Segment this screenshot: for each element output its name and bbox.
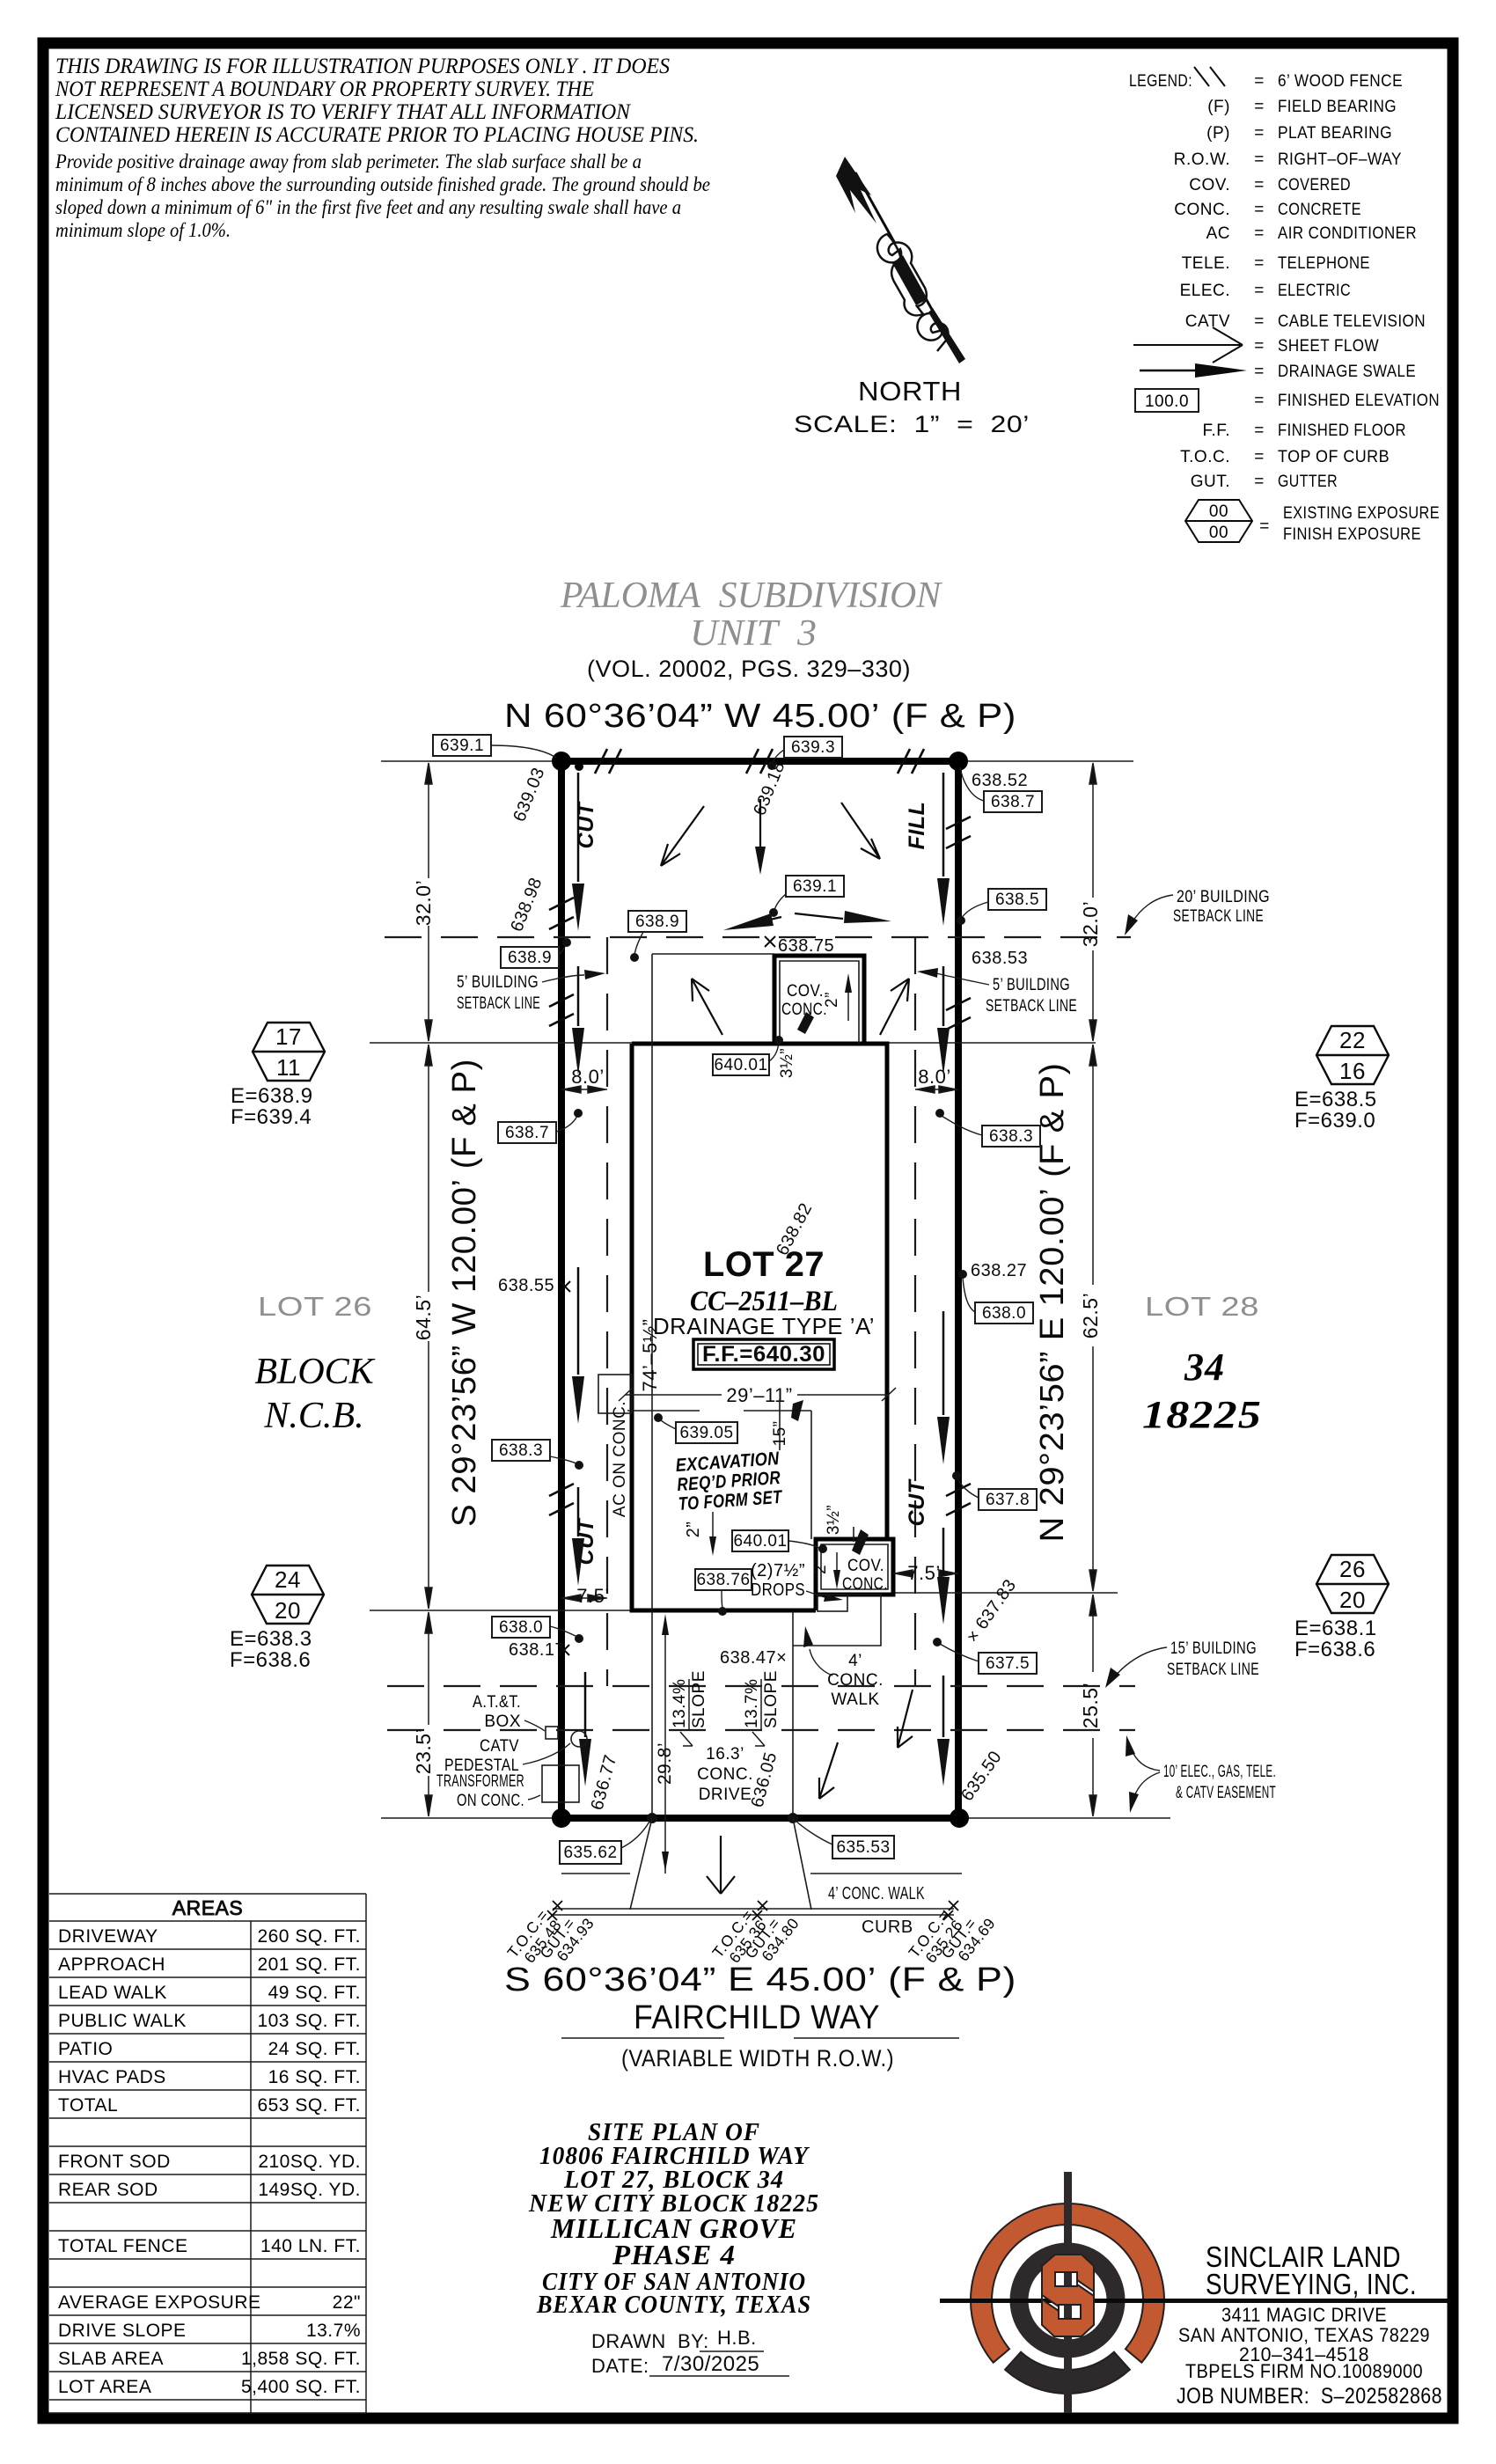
svg-text:640.01: 640.01: [714, 1056, 767, 1074]
svg-text:637.8: 637.8: [986, 1491, 1030, 1509]
svg-text:F.F.: F.F.: [1202, 422, 1230, 440]
svg-text:639.3: 639.3: [791, 738, 835, 757]
svg-text:COV.: COV.: [847, 1557, 884, 1575]
svg-text:REAR SOD: REAR SOD: [58, 2180, 158, 2200]
svg-text:638.7: 638.7: [991, 793, 1035, 811]
svg-text:DRAINAGE SWALE: DRAINAGE SWALE: [1278, 363, 1416, 381]
svg-text:NORTH: NORTH: [858, 376, 962, 407]
svg-text:AC ON CONC.: AC ON CONC.: [611, 1401, 629, 1517]
svg-text:=: =: [1254, 448, 1265, 466]
svg-text:DRIVE SLOPE: DRIVE SLOPE: [58, 2321, 187, 2341]
svg-text:DRIVEWAY: DRIVEWAY: [58, 1926, 158, 1947]
svg-text:3½”: 3½”: [825, 1505, 843, 1535]
svg-text:TRANSFORMER: TRANSFORMER: [436, 1772, 524, 1791]
svg-text:5,400 SQ. FT.: 5,400 SQ. FT.: [241, 2377, 361, 2397]
svg-text:24: 24: [275, 1566, 301, 1593]
svg-text:(2)7½”: (2)7½”: [751, 1561, 805, 1580]
svg-text:15”: 15”: [771, 1421, 789, 1447]
svg-text:THIS DRAWING IS FOR ILLUSTRATI: THIS DRAWING IS FOR ILLUSTRATION PURPOSE…: [55, 55, 670, 78]
svg-text:LEAD WALK: LEAD WALK: [58, 1983, 167, 2003]
svg-text:DATE:: DATE:: [591, 2355, 649, 2377]
svg-text:20: 20: [275, 1597, 301, 1624]
svg-text:CATV: CATV: [480, 1737, 519, 1756]
svg-text:SHEET FLOW: SHEET FLOW: [1278, 337, 1379, 356]
svg-text:F=638.6: F=638.6: [1294, 1638, 1375, 1661]
svg-text:13.7%: 13.7%: [306, 2321, 361, 2341]
svg-text:62.5’: 62.5’: [1079, 1293, 1102, 1338]
svg-text:638.76: 638.76: [696, 1571, 750, 1589]
svg-text:HVAC PADS: HVAC PADS: [58, 2067, 166, 2087]
svg-text:638.9: 638.9: [508, 949, 552, 967]
svg-text:32.0’: 32.0’: [1079, 901, 1102, 947]
svg-text:F=639.0: F=639.0: [1294, 1109, 1375, 1133]
svg-text:RIGHT–OF–WAY: RIGHT–OF–WAY: [1278, 150, 1402, 169]
svg-text:SLOPE: SLOPE: [762, 1670, 781, 1728]
svg-text:100.0: 100.0: [1145, 392, 1189, 411]
svg-text:CONTAINED HEREIN IS ACCURATE P: CONTAINED HEREIN IS ACCURATE PRIOR TO PL…: [55, 123, 699, 147]
svg-text:DRAWN BY:: DRAWN BY:: [591, 2330, 709, 2352]
svg-text:LOT 27: LOT 27: [703, 1245, 825, 1284]
svg-text:=: =: [1254, 124, 1265, 143]
svg-text:=: =: [1259, 517, 1270, 536]
svg-text:49 SQ. FT.: 49 SQ. FT.: [268, 1983, 361, 2003]
svg-text:638.5: 638.5: [995, 891, 1039, 909]
svg-text:5’ BUILDING: 5’ BUILDING: [993, 976, 1070, 994]
svg-text:638.27: 638.27: [971, 1261, 1027, 1280]
svg-text:minimum slope of 1.0%.: minimum slope of 1.0%.: [55, 219, 231, 241]
svg-text:CUT: CUT: [905, 1478, 929, 1526]
svg-text:22: 22: [1339, 1027, 1366, 1053]
svg-text:=: =: [1254, 98, 1265, 116]
svg-text:CABLE TELEVISION: CABLE TELEVISION: [1278, 312, 1426, 331]
svg-text:SETBACK LINE: SETBACK LINE: [1173, 907, 1264, 926]
svg-text:PATIO: PATIO: [58, 2039, 113, 2059]
svg-text:UNIT 3: UNIT 3: [690, 613, 817, 654]
svg-text:1,858 SQ. FT.: 1,858 SQ. FT.: [241, 2349, 361, 2369]
svg-text:NOT REPRESENT A BOUNDARY OR PR: NOT REPRESENT A BOUNDARY OR PROPERTY SUR…: [55, 77, 594, 101]
svg-text:639.1: 639.1: [793, 877, 837, 896]
svg-text:SETBACK LINE: SETBACK LINE: [457, 994, 540, 1013]
svg-text:2”: 2”: [811, 1558, 830, 1574]
svg-text:3411 MAGIC DRIVE: 3411 MAGIC DRIVE: [1221, 2304, 1387, 2326]
svg-text:653 SQ. FT.: 653 SQ. FT.: [257, 2095, 361, 2116]
svg-text:10’ ELEC., GAS, TELE.: 10’ ELEC., GAS, TELE.: [1163, 1763, 1276, 1781]
svg-text:=: =: [1254, 337, 1265, 356]
svg-text:F=639.4: F=639.4: [231, 1105, 312, 1129]
svg-text:5’ BUILDING: 5’ BUILDING: [457, 973, 539, 992]
svg-text:GUT.: GUT.: [1191, 473, 1230, 491]
svg-text:635.53: 635.53: [836, 1838, 890, 1857]
svg-text:PHASE 4: PHASE 4: [612, 2239, 736, 2270]
svg-text:E=638.5: E=638.5: [1294, 1088, 1377, 1111]
svg-text:N.C.B.: N.C.B.: [263, 1396, 363, 1436]
svg-text:29.8’: 29.8’: [655, 1742, 675, 1785]
svg-text:15’ BUILDING: 15’ BUILDING: [1170, 1639, 1257, 1658]
svg-text:WALK: WALK: [831, 1690, 879, 1709]
svg-text:TELEPHONE: TELEPHONE: [1278, 254, 1370, 273]
svg-text:638.0: 638.0: [499, 1618, 543, 1637]
svg-text:& CATV EASEMENT: & CATV EASEMENT: [1176, 1784, 1276, 1802]
svg-text:=: =: [1254, 363, 1265, 381]
svg-text:149SQ. YD.: 149SQ. YD.: [258, 2180, 361, 2200]
svg-text:201 SQ. FT.: 201 SQ. FT.: [257, 1954, 361, 1975]
svg-text:17: 17: [275, 1023, 302, 1050]
svg-text:16: 16: [1339, 1058, 1366, 1084]
svg-text:S 60°36’04” E 45.00’ (F & P): S 60°36’04” E 45.00’ (F & P): [504, 1962, 1016, 1998]
svg-text:COV.: COV.: [787, 982, 824, 1001]
svg-text:8.0’: 8.0’: [571, 1066, 604, 1088]
svg-text:FINISH EXPOSURE: FINISH EXPOSURE: [1283, 525, 1421, 544]
svg-text:LOT AREA: LOT AREA: [58, 2377, 151, 2397]
svg-text:TBPELS FIRM NO.10089000: TBPELS FIRM NO.10089000: [1185, 2360, 1423, 2382]
svg-text:SURVEYING, INC.: SURVEYING, INC.: [1206, 2268, 1417, 2300]
svg-text:LICENSED SURVEYOR IS TO VERIFY: LICENSED SURVEYOR IS TO VERIFY THAT ALL …: [55, 100, 631, 124]
svg-text:6’ WOOD FENCE: 6’ WOOD FENCE: [1278, 72, 1403, 91]
svg-text:638.17: 638.17: [509, 1640, 565, 1660]
svg-text:=: =: [1254, 224, 1265, 243]
svg-text:639.05: 639.05: [679, 1424, 733, 1442]
svg-text:638.3: 638.3: [989, 1127, 1033, 1146]
svg-text:639.1: 639.1: [440, 737, 484, 755]
svg-text:sloped down a minimum of 6" in: sloped down a minimum of 6" in the first…: [55, 196, 681, 218]
svg-text:TOTAL FENCE: TOTAL FENCE: [58, 2236, 187, 2256]
svg-text:FRONT SOD: FRONT SOD: [58, 2152, 171, 2172]
svg-text:140 LN. FT.: 140 LN. FT.: [260, 2236, 361, 2256]
svg-text:7.5’: 7.5’: [907, 1562, 940, 1584]
svg-text:=: =: [1254, 422, 1265, 440]
svg-text:CATV: CATV: [1185, 312, 1230, 331]
svg-text:CONC.: CONC.: [781, 1001, 827, 1019]
svg-text:AVERAGE EXPOSURE: AVERAGE EXPOSURE: [58, 2292, 261, 2313]
svg-text:26: 26: [1339, 1556, 1366, 1582]
svg-text:AC: AC: [1206, 224, 1230, 243]
svg-text:minimum of 8 inches above the: minimum of 8 inches above the surroundin…: [55, 173, 710, 195]
svg-text:R.O.W.: R.O.W.: [1174, 150, 1230, 169]
svg-text:(F): (F): [1207, 98, 1230, 116]
svg-text:COVERED: COVERED: [1278, 176, 1351, 194]
svg-text:CONCRETE: CONCRETE: [1278, 201, 1361, 219]
svg-text:CONC.: CONC.: [842, 1575, 888, 1594]
svg-text:00: 00: [1209, 524, 1228, 542]
svg-text:103 SQ. FT.: 103 SQ. FT.: [257, 2011, 361, 2031]
svg-text:SETBACK LINE: SETBACK LINE: [1167, 1661, 1259, 1679]
svg-text:635.62: 635.62: [563, 1844, 617, 1862]
svg-text:3½”: 3½”: [778, 1048, 796, 1078]
svg-text:FINISHED FLOOR: FINISHED FLOOR: [1278, 422, 1406, 440]
svg-text:LOT 28: LOT 28: [1145, 1291, 1259, 1322]
svg-text:=: =: [1254, 392, 1265, 410]
svg-text:LOT 26: LOT 26: [258, 1291, 372, 1322]
svg-text:24 SQ. FT.: 24 SQ. FT.: [268, 2039, 361, 2059]
svg-text:E=638.9: E=638.9: [231, 1084, 313, 1108]
svg-text:LEGEND:: LEGEND:: [1129, 72, 1192, 91]
svg-text:PUBLIC WALK: PUBLIC WALK: [58, 2011, 187, 2031]
svg-text:13.7%: 13.7%: [743, 1679, 761, 1728]
svg-text:CONC.: CONC.: [1174, 201, 1230, 219]
svg-text:E=638.1: E=638.1: [1294, 1617, 1377, 1640]
svg-text:=: =: [1254, 473, 1265, 491]
svg-text:ON CONC.: ON CONC.: [457, 1792, 524, 1810]
svg-text:N 60°36’04” W 45.00’ (F & P): N 60°36’04” W 45.00’ (F & P): [504, 698, 1016, 735]
svg-text:4’: 4’: [848, 1652, 862, 1670]
svg-text:20: 20: [1339, 1587, 1366, 1613]
svg-text:638.3: 638.3: [499, 1441, 543, 1460]
svg-text:22": 22": [333, 2292, 361, 2313]
svg-text:(P): (P): [1206, 124, 1230, 143]
svg-text:A.T.&T.: A.T.&T.: [473, 1693, 521, 1712]
svg-text:2”: 2”: [684, 1522, 703, 1538]
svg-text:CONC.: CONC.: [827, 1671, 884, 1690]
svg-text:DRAINAGE TYPE ’A’: DRAINAGE TYPE ’A’: [653, 1313, 875, 1339]
svg-text:TOP OF CURB: TOP OF CURB: [1278, 448, 1390, 466]
svg-text:(VARIABLE WIDTH R.O.W.): (VARIABLE WIDTH R.O.W.): [621, 2045, 894, 2072]
svg-text:638.47×: 638.47×: [720, 1648, 787, 1668]
svg-text:EXISTING EXPOSURE: EXISTING EXPOSURE: [1283, 504, 1440, 523]
svg-text:11: 11: [276, 1054, 301, 1081]
svg-text:S 29°23’56” W 120.00’ (F & P): S 29°23’56” W 120.00’ (F & P): [446, 1059, 483, 1527]
svg-text:18225: 18225: [1142, 1393, 1262, 1436]
svg-text:7.5’: 7.5’: [576, 1585, 609, 1607]
svg-text:25.5’: 25.5’: [1079, 1683, 1102, 1728]
svg-text:APPROACH: APPROACH: [58, 1954, 165, 1975]
svg-text:FIELD BEARING: FIELD BEARING: [1278, 98, 1397, 116]
svg-text:210SQ. YD.: 210SQ. YD.: [258, 2152, 361, 2172]
svg-text:16.3’: 16.3’: [706, 1745, 744, 1764]
svg-text:AREAS: AREAS: [172, 1896, 243, 1919]
svg-text:CURB: CURB: [862, 1918, 913, 1937]
svg-text:BEXAR COUNTY, TEXAS: BEXAR COUNTY, TEXAS: [536, 2292, 811, 2319]
svg-text:FAIRCHILD WAY: FAIRCHILD WAY: [634, 1999, 880, 2036]
svg-text:20’ BUILDING: 20’ BUILDING: [1177, 888, 1270, 906]
svg-text:DRIVE: DRIVE: [699, 1786, 752, 1804]
svg-text:GUTTER: GUTTER: [1278, 473, 1338, 491]
svg-text:8.0’: 8.0’: [918, 1066, 950, 1088]
svg-text:2”: 2”: [823, 992, 841, 1008]
svg-text:ELECTRIC: ELECTRIC: [1278, 282, 1351, 300]
svg-text:13.4%: 13.4%: [671, 1679, 689, 1728]
svg-text:=: =: [1254, 254, 1265, 273]
svg-text:638.9: 638.9: [635, 913, 679, 931]
svg-text:638.7: 638.7: [505, 1124, 549, 1142]
svg-text:=: =: [1254, 312, 1265, 331]
svg-text:4’ CONC. WALK: 4’ CONC. WALK: [828, 1884, 925, 1903]
svg-text:PLAT BEARING: PLAT BEARING: [1278, 124, 1392, 143]
svg-text:SLAB AREA: SLAB AREA: [58, 2349, 164, 2369]
svg-text:=: =: [1254, 176, 1265, 194]
svg-text:ELEC.: ELEC.: [1180, 282, 1230, 300]
svg-text:640.01: 640.01: [733, 1532, 787, 1551]
svg-text:JOB NUMBER: S–202582868: JOB NUMBER: S–202582868: [1177, 2384, 1442, 2409]
svg-text:638.52: 638.52: [972, 771, 1028, 790]
svg-text:=: =: [1254, 201, 1265, 219]
svg-text:=: =: [1254, 150, 1265, 169]
svg-text:SETBACK LINE: SETBACK LINE: [986, 997, 1077, 1016]
svg-text:FILL: FILL: [905, 802, 929, 850]
svg-text:Provide positive drainage away: Provide positive drainage away from slab…: [55, 150, 642, 172]
svg-text:638.55: 638.55: [498, 1276, 554, 1295]
svg-text:32.0’: 32.0’: [412, 880, 435, 926]
svg-text:FINISHED ELEVATION: FINISHED ELEVATION: [1278, 392, 1440, 410]
svg-text:23.5’: 23.5’: [412, 1728, 435, 1774]
svg-text:SLOPE: SLOPE: [690, 1670, 708, 1728]
svg-text:H.B.: H.B.: [717, 2327, 757, 2349]
svg-text:29’–11”: 29’–11”: [726, 1384, 792, 1406]
svg-text:COV.: COV.: [1189, 176, 1230, 194]
svg-text:BOX: BOX: [484, 1712, 521, 1731]
svg-text:F.F.=640.30: F.F.=640.30: [702, 1342, 825, 1367]
svg-text:00: 00: [1209, 502, 1228, 521]
svg-text:16 SQ. FT.: 16 SQ. FT.: [268, 2067, 361, 2087]
svg-text:SCALE: 1” = 20’: SCALE: 1” = 20’: [794, 411, 1030, 437]
svg-text:PALOMA SUBDIVISION: PALOMA SUBDIVISION: [560, 576, 942, 616]
svg-text:7/30/2025: 7/30/2025: [662, 2352, 759, 2376]
svg-text:=: =: [1254, 282, 1265, 300]
svg-text:BLOCK: BLOCK: [254, 1352, 375, 1392]
svg-text:AIR CONDITIONER: AIR CONDITIONER: [1278, 224, 1417, 243]
svg-text:CONC.: CONC.: [697, 1765, 753, 1784]
svg-text:260 SQ. FT.: 260 SQ. FT.: [257, 1926, 361, 1947]
svg-text:F=638.6: F=638.6: [230, 1648, 311, 1672]
svg-text:638.75: 638.75: [778, 936, 834, 956]
svg-text:=: =: [1254, 72, 1265, 91]
svg-text:(VOL. 20002, PGS. 329–330): (VOL. 20002, PGS. 329–330): [587, 656, 911, 682]
svg-text:34: 34: [1184, 1346, 1225, 1389]
svg-text:638.0: 638.0: [982, 1304, 1026, 1323]
svg-text:DROPS: DROPS: [751, 1580, 805, 1600]
svg-text:TELE.: TELE.: [1182, 254, 1230, 273]
svg-text:TOTAL: TOTAL: [58, 2095, 118, 2116]
svg-text:T.O.C.: T.O.C.: [1180, 448, 1230, 466]
svg-text:638.53: 638.53: [972, 949, 1028, 968]
svg-text:E=638.3: E=638.3: [230, 1627, 312, 1651]
svg-text:637.5: 637.5: [986, 1654, 1030, 1673]
svg-text:64.5’: 64.5’: [412, 1294, 435, 1340]
